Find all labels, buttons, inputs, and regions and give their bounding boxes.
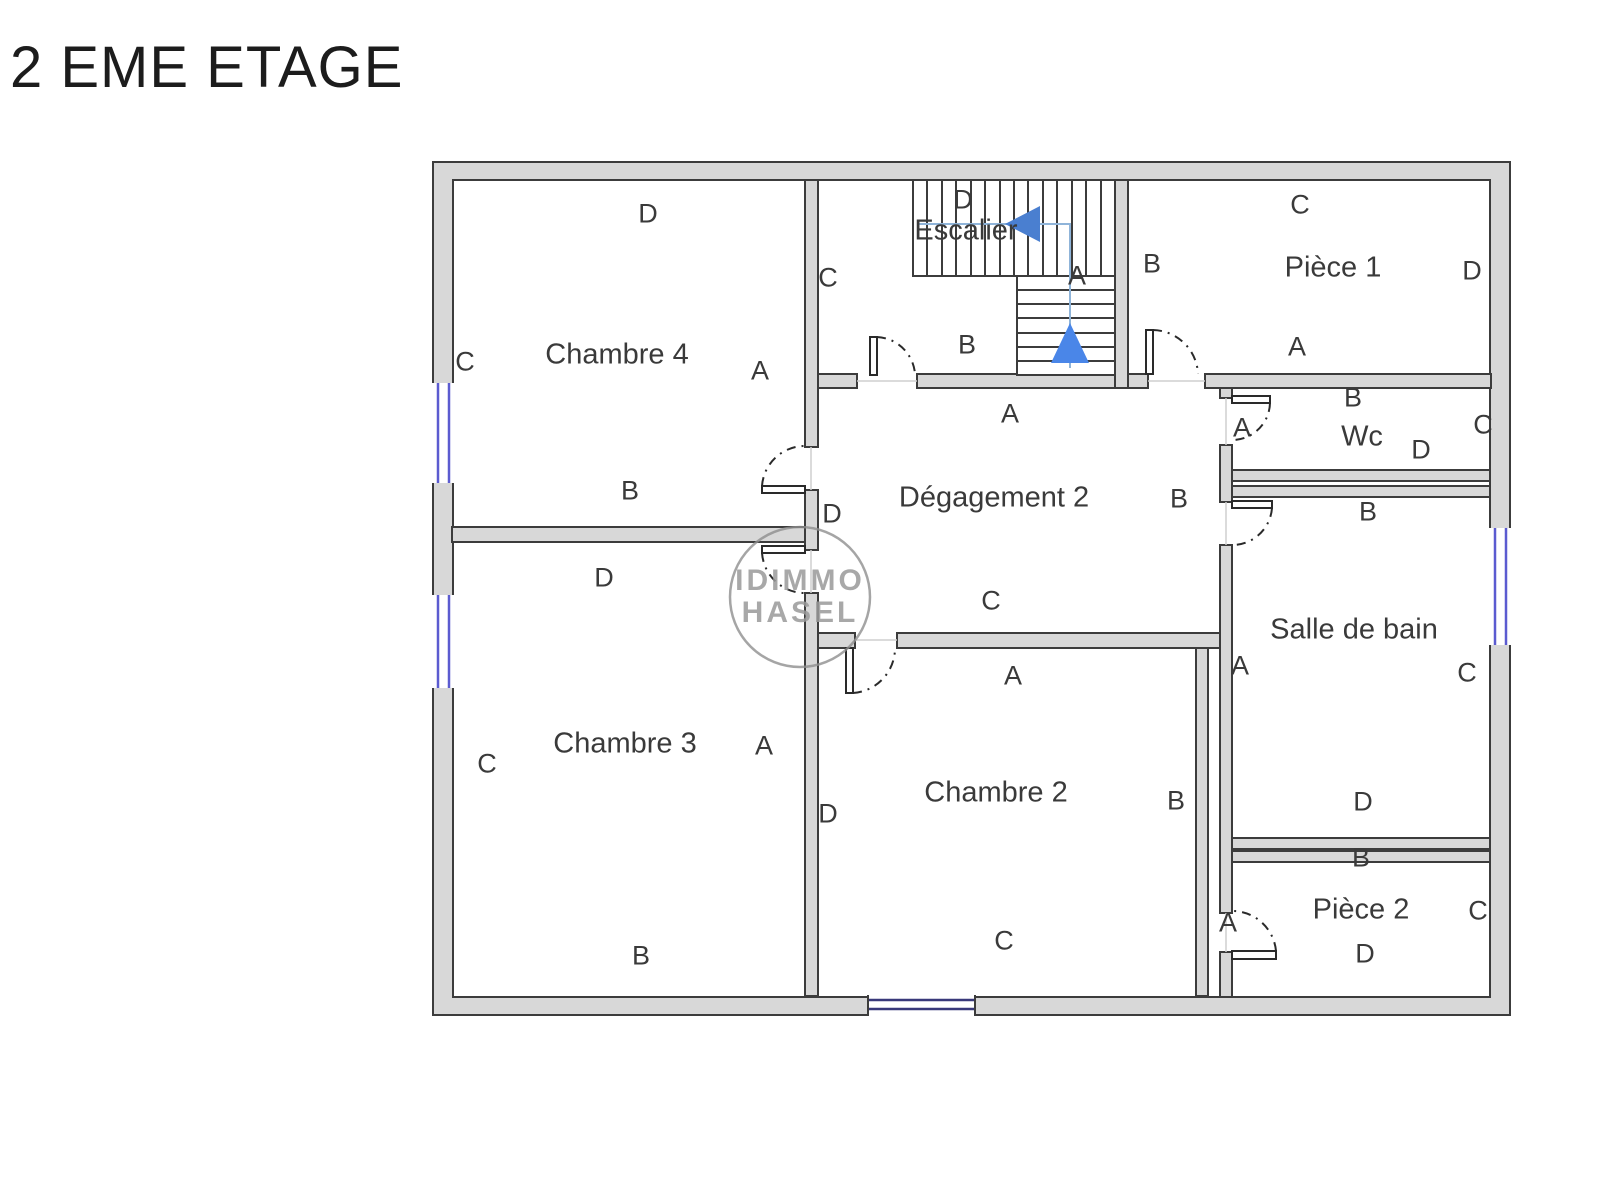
wall-letter-piece1-right: D <box>1462 256 1482 287</box>
wall-letter-chambre3-top: D <box>594 563 614 594</box>
wall-letter-piece1-left: B <box>1143 249 1161 280</box>
wall-letter-salledebain-right: C <box>1457 658 1477 689</box>
room-label-piece2: Pièce 2 <box>1313 894 1410 927</box>
wall-letter-piece2-bottom: D <box>1355 939 1375 970</box>
room-label-chambre3: Chambre 3 <box>553 728 696 761</box>
wall-letter-wc-top: B <box>1344 383 1362 414</box>
wall-letter-piece1-top: C <box>1290 190 1310 221</box>
door-stair-hall <box>870 337 915 375</box>
wall-letter-piece2-right: C <box>1468 896 1488 927</box>
room-label-chambre4: Chambre 4 <box>545 339 688 372</box>
wall-letter-piece2-top: B <box>1352 843 1370 874</box>
door-piece2 <box>1232 911 1276 959</box>
wall-letter-degagement2-top: A <box>1001 399 1019 430</box>
door-piece1 <box>1146 330 1198 374</box>
wall-letter-escalier-bottom: B <box>958 330 976 361</box>
room-label-salledebain: Salle de bain <box>1270 614 1438 647</box>
wall-letter-chambre2-bottom: C <box>994 926 1014 957</box>
wall-letter-degagement2-left: D <box>822 499 842 530</box>
window-left-chambre3 <box>432 595 454 688</box>
room-label-escalier: Escalier <box>914 215 1017 248</box>
floor-plan-page: 2 EME ETAGE IDIMMO HASEL Chambre 4 D C A… <box>0 0 1600 1200</box>
door-chambre4 <box>762 446 805 493</box>
wall-letter-chambre2-left: D <box>818 799 838 830</box>
wall-letter-degagement2-bottom: C <box>981 586 1001 617</box>
window-right-salledebain <box>1489 528 1511 645</box>
wall-letter-salledebain-top: B <box>1359 497 1377 528</box>
page-title: 2 EME ETAGE <box>10 34 403 101</box>
wall-letter-escalier-right: A <box>1068 261 1086 292</box>
window-bottom-chambre2 <box>868 995 975 1017</box>
room-label-piece1: Pièce 1 <box>1285 252 1382 285</box>
door-chambre2 <box>846 648 895 693</box>
window-left-chambre4 <box>432 383 454 483</box>
wall-letter-chambre3-bottom: B <box>632 941 650 972</box>
wall-letter-escalier-left: C <box>818 263 838 294</box>
wall-letter-piece1-bottom: A <box>1288 332 1306 363</box>
wall-letter-chambre4-bottom: B <box>621 476 639 507</box>
room-label-degagement2: Dégagement 2 <box>899 482 1089 515</box>
wall-letter-salledebain-bottom: D <box>1353 787 1373 818</box>
wall-letter-chambre4-top: D <box>638 199 658 230</box>
room-label-chambre2: Chambre 2 <box>924 777 1067 810</box>
watermark-line2: HASEL <box>735 597 865 629</box>
wall-letter-chambre2-top: A <box>1004 661 1022 692</box>
wall-letter-wc-bottom: D <box>1411 435 1431 466</box>
wall-letter-chambre3-left: C <box>477 749 497 780</box>
wall-letter-escalier-top: D <box>953 185 973 216</box>
wall-letter-chambre2-right: B <box>1167 786 1185 817</box>
wall-letter-degagement2-right: B <box>1170 484 1188 515</box>
wall-letter-salledebain-left: A <box>1231 651 1249 682</box>
wall-letter-chambre4-left: C <box>455 347 475 378</box>
door-salledebain <box>1232 501 1272 545</box>
wall-letter-wc-right: C <box>1473 410 1493 441</box>
wall-letter-chambre3-right: A <box>755 731 773 762</box>
wall-letter-wc-left: A <box>1233 413 1251 444</box>
wall-letter-piece2-left: A <box>1219 908 1237 939</box>
watermark-text: IDIMMO HASEL <box>735 565 865 629</box>
wall-letter-chambre4-right: A <box>751 356 769 387</box>
room-label-wc: Wc <box>1341 421 1383 454</box>
watermark-line1: IDIMMO <box>735 565 865 597</box>
